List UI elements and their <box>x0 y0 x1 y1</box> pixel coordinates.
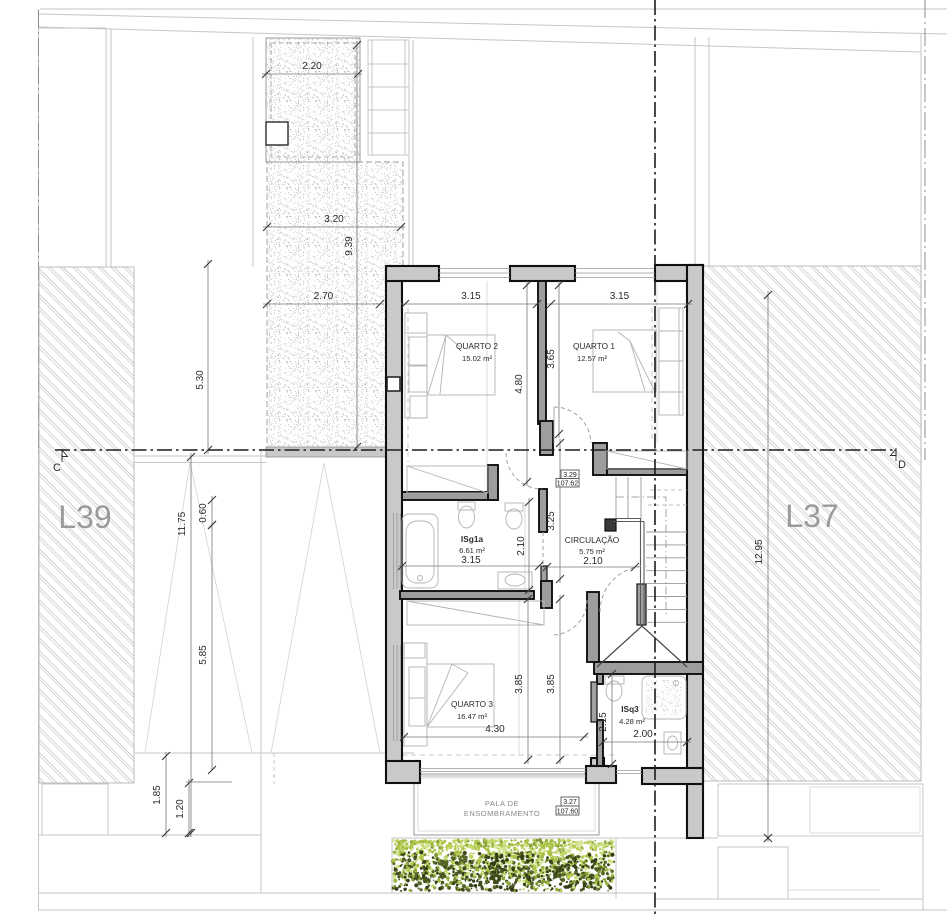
svg-text:5.85: 5.85 <box>198 645 209 665</box>
svg-text:L37: L37 <box>785 498 838 534</box>
svg-text:2.20: 2.20 <box>302 61 322 72</box>
svg-text:4.30: 4.30 <box>485 724 505 735</box>
svg-text:ENSOMBRAMENTO: ENSOMBRAMENTO <box>464 809 540 818</box>
svg-text:1.20: 1.20 <box>175 799 186 819</box>
svg-text:3.29: 3.29 <box>563 472 577 479</box>
svg-text:L39: L39 <box>58 499 111 535</box>
svg-text:3.15: 3.15 <box>610 291 630 302</box>
svg-text:12.95: 12.95 <box>754 539 765 564</box>
svg-text:6.61 m²: 6.61 m² <box>459 546 485 555</box>
svg-text:PALA DE: PALA DE <box>485 799 519 808</box>
svg-text:12.57 m²: 12.57 m² <box>577 354 607 363</box>
svg-text:9.39: 9.39 <box>344 236 355 256</box>
svg-text:2.70: 2.70 <box>314 291 334 302</box>
svg-text:QUARTO 3: QUARTO 3 <box>451 699 493 709</box>
svg-text:2.00: 2.00 <box>633 729 653 740</box>
svg-text:C: C <box>53 462 61 474</box>
svg-text:11.75: 11.75 <box>177 511 188 536</box>
svg-text:5.75 m²: 5.75 m² <box>579 547 605 556</box>
svg-text:2.10: 2.10 <box>516 536 527 556</box>
svg-text:3.15: 3.15 <box>461 555 481 566</box>
svg-text:1.85: 1.85 <box>152 785 163 805</box>
svg-text:ISq3: ISq3 <box>621 704 639 714</box>
svg-text:16.47 m²: 16.47 m² <box>457 712 487 721</box>
svg-text:3.27: 3.27 <box>563 799 577 806</box>
svg-text:4.28 m²: 4.28 m² <box>619 717 645 726</box>
svg-text:3.15: 3.15 <box>461 291 481 302</box>
svg-text:3.65: 3.65 <box>546 349 557 369</box>
svg-text:3.85: 3.85 <box>514 674 525 694</box>
svg-text:107.62: 107.62 <box>557 481 579 488</box>
svg-text:2.10: 2.10 <box>583 556 603 567</box>
svg-text:5.30: 5.30 <box>195 370 206 390</box>
svg-text:0.60: 0.60 <box>198 503 209 523</box>
svg-text:QUARTO 2: QUARTO 2 <box>456 341 498 351</box>
svg-text:3.85: 3.85 <box>546 674 557 694</box>
svg-text:QUARTO 1: QUARTO 1 <box>573 341 615 351</box>
svg-text:3.20: 3.20 <box>324 214 344 225</box>
svg-text:2.15: 2.15 <box>598 712 609 732</box>
svg-text:107.60: 107.60 <box>557 809 579 816</box>
svg-text:ISg1a: ISg1a <box>461 534 484 544</box>
svg-text:3.25: 3.25 <box>546 511 557 531</box>
svg-text:CIRCULAÇÃO: CIRCULAÇÃO <box>565 535 620 545</box>
svg-text:D: D <box>898 459 906 471</box>
svg-text:15.02 m²: 15.02 m² <box>462 354 492 363</box>
svg-text:4.80: 4.80 <box>514 374 525 394</box>
